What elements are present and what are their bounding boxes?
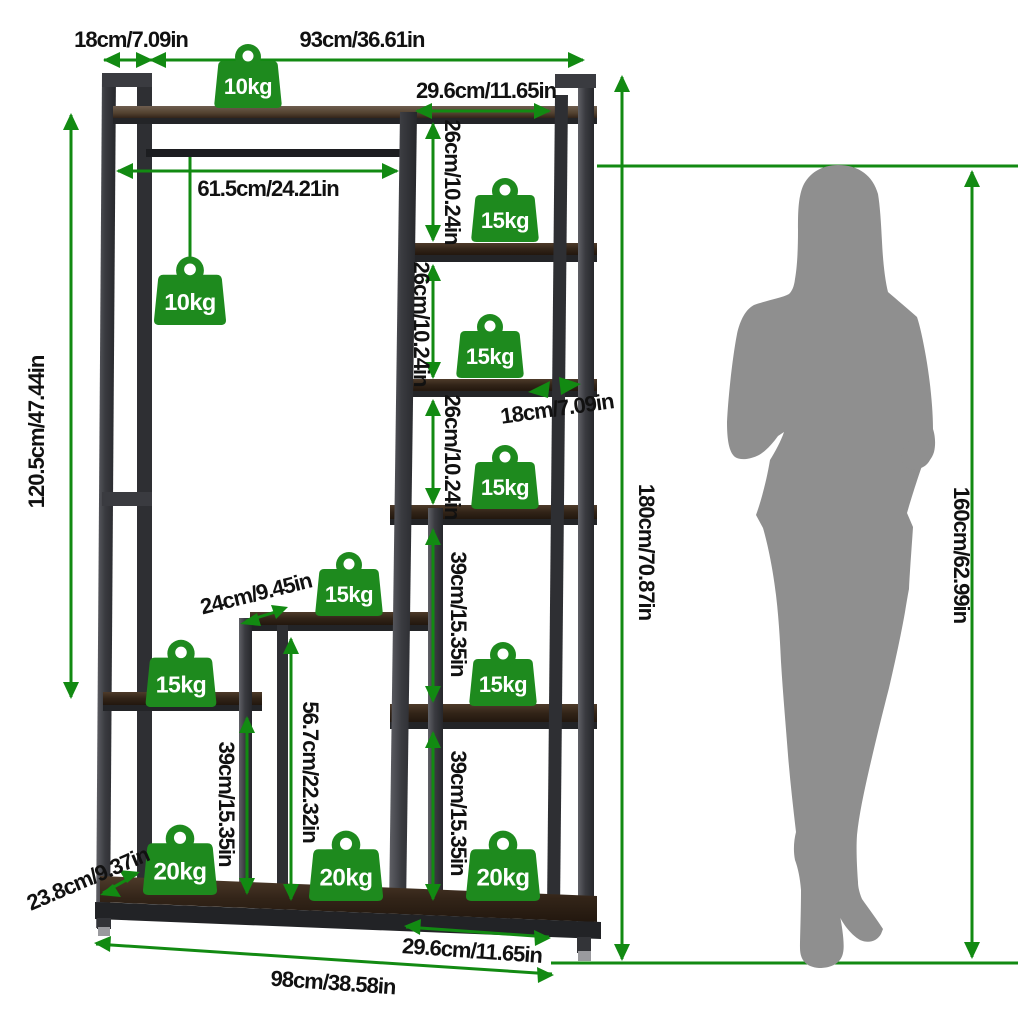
- svg-text:10kg: 10kg: [164, 289, 216, 315]
- svg-text:18cm/7.09in: 18cm/7.09in: [74, 27, 188, 52]
- svg-text:15kg: 15kg: [156, 671, 207, 697]
- svg-text:20kg: 20kg: [477, 865, 530, 892]
- svg-text:15kg: 15kg: [466, 344, 514, 369]
- svg-text:26cm/10.24in: 26cm/10.24in: [440, 395, 465, 521]
- svg-text:29.6cm/11.65in: 29.6cm/11.65in: [416, 78, 557, 103]
- svg-text:39cm/15.35in: 39cm/15.35in: [446, 751, 471, 877]
- svg-text:29.6cm/11.65in: 29.6cm/11.65in: [401, 933, 543, 968]
- svg-text:26cm/10.24in: 26cm/10.24in: [409, 262, 434, 388]
- svg-text:20kg: 20kg: [154, 859, 207, 886]
- svg-text:15kg: 15kg: [481, 208, 529, 233]
- svg-text:120.5cm/47.44in: 120.5cm/47.44in: [24, 355, 49, 508]
- svg-text:20kg: 20kg: [320, 865, 373, 892]
- svg-text:26cm/10.24in: 26cm/10.24in: [440, 120, 465, 246]
- svg-text:15kg: 15kg: [479, 672, 527, 697]
- svg-text:56.7cm/22.32in: 56.7cm/22.32in: [298, 701, 323, 843]
- svg-text:24cm/9.45in: 24cm/9.45in: [198, 567, 315, 619]
- svg-text:98cm/38.58in: 98cm/38.58in: [270, 966, 397, 1000]
- svg-text:15kg: 15kg: [325, 582, 373, 607]
- svg-text:93cm/36.61in: 93cm/36.61in: [300, 27, 426, 52]
- svg-text:10kg: 10kg: [224, 74, 272, 99]
- svg-text:160cm/62.99in: 160cm/62.99in: [949, 487, 974, 624]
- svg-text:39cm/15.35in: 39cm/15.35in: [446, 552, 471, 678]
- svg-text:61.5cm/24.21in: 61.5cm/24.21in: [197, 176, 339, 201]
- svg-text:15kg: 15kg: [481, 475, 529, 500]
- svg-text:180cm/70.87in: 180cm/70.87in: [634, 484, 659, 621]
- svg-text:39cm/15.35in: 39cm/15.35in: [214, 742, 239, 868]
